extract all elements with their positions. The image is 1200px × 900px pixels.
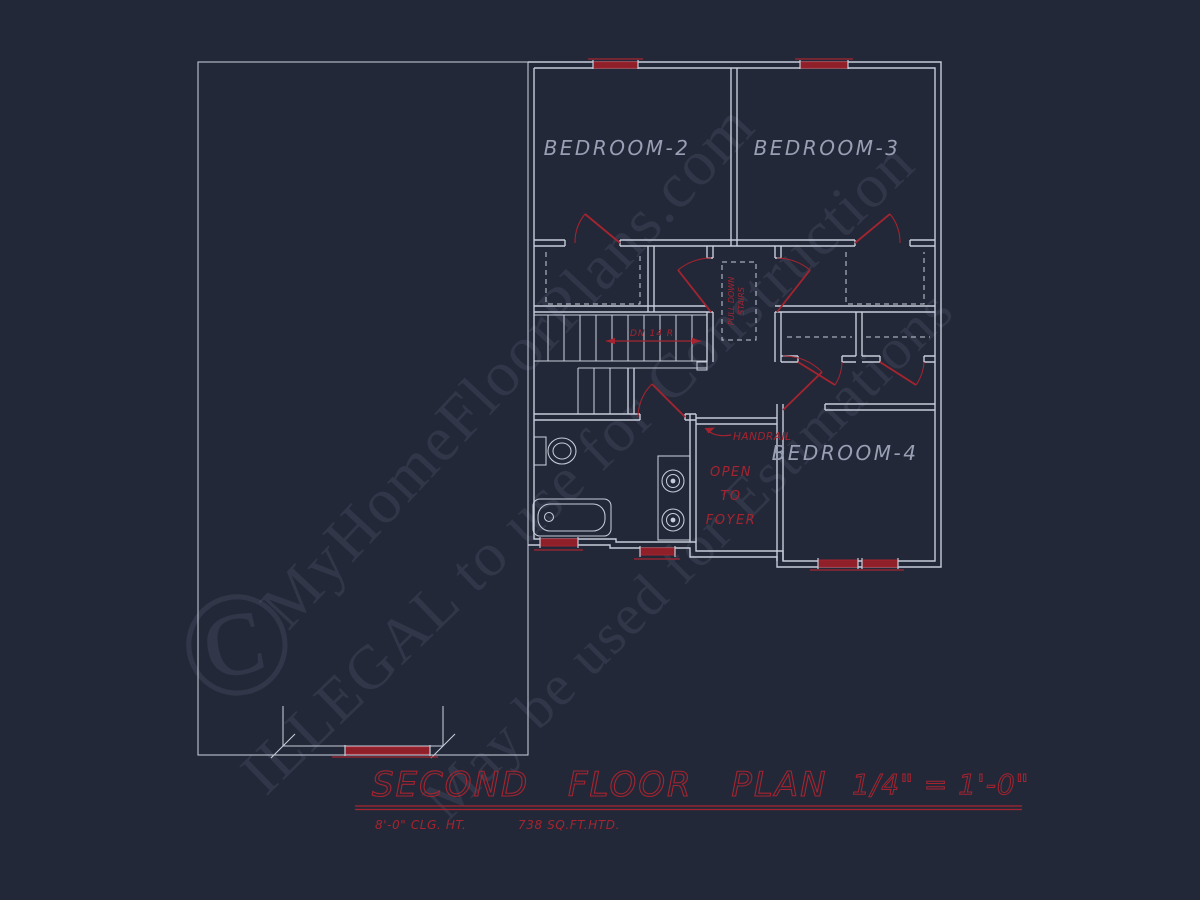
heated-area-note: 738 SQ.FT.HTD. <box>518 818 620 832</box>
stairs-dn-label: DN 14 R <box>630 329 674 339</box>
floor-plan-canvas: © MyHomeFloorPlans.com ILLEGAL to use fo… <box>0 0 1200 900</box>
drawing-scale: 1/4" = 1'-0" <box>852 768 1030 801</box>
ceiling-height-note: 8'-0" CLG. HT. <box>375 818 466 832</box>
pull-down-label-line2: STAIRS <box>737 287 746 315</box>
room-label-bedroom3: BEDROOM-3 <box>754 136 901 160</box>
open-to-foyer-line1: OPEN <box>710 465 752 480</box>
floor-plan-page: © MyHomeFloorPlans.com ILLEGAL to use fo… <box>0 0 1200 900</box>
title-block: SECOND FLOOR PLAN 1/4" = 1'-0" 8'-0" CLG… <box>355 765 1030 832</box>
window-bedroom4-double <box>810 558 904 570</box>
window-bedroom3 <box>795 59 853 69</box>
window-bedroom2 <box>588 59 643 69</box>
drawing-title: SECOND FLOOR PLAN <box>372 765 828 805</box>
handrail-label: HANDRAIL <box>733 431 791 443</box>
room-label-bedroom4: BEDROOM-4 <box>772 441 919 465</box>
room-label-bedroom2: BEDROOM-2 <box>544 136 691 160</box>
pull-down-label-line1: PULL DOWN <box>727 277 736 326</box>
open-to-foyer-line2: TO <box>720 489 741 504</box>
open-to-foyer-line3: FOYER <box>706 513 756 528</box>
